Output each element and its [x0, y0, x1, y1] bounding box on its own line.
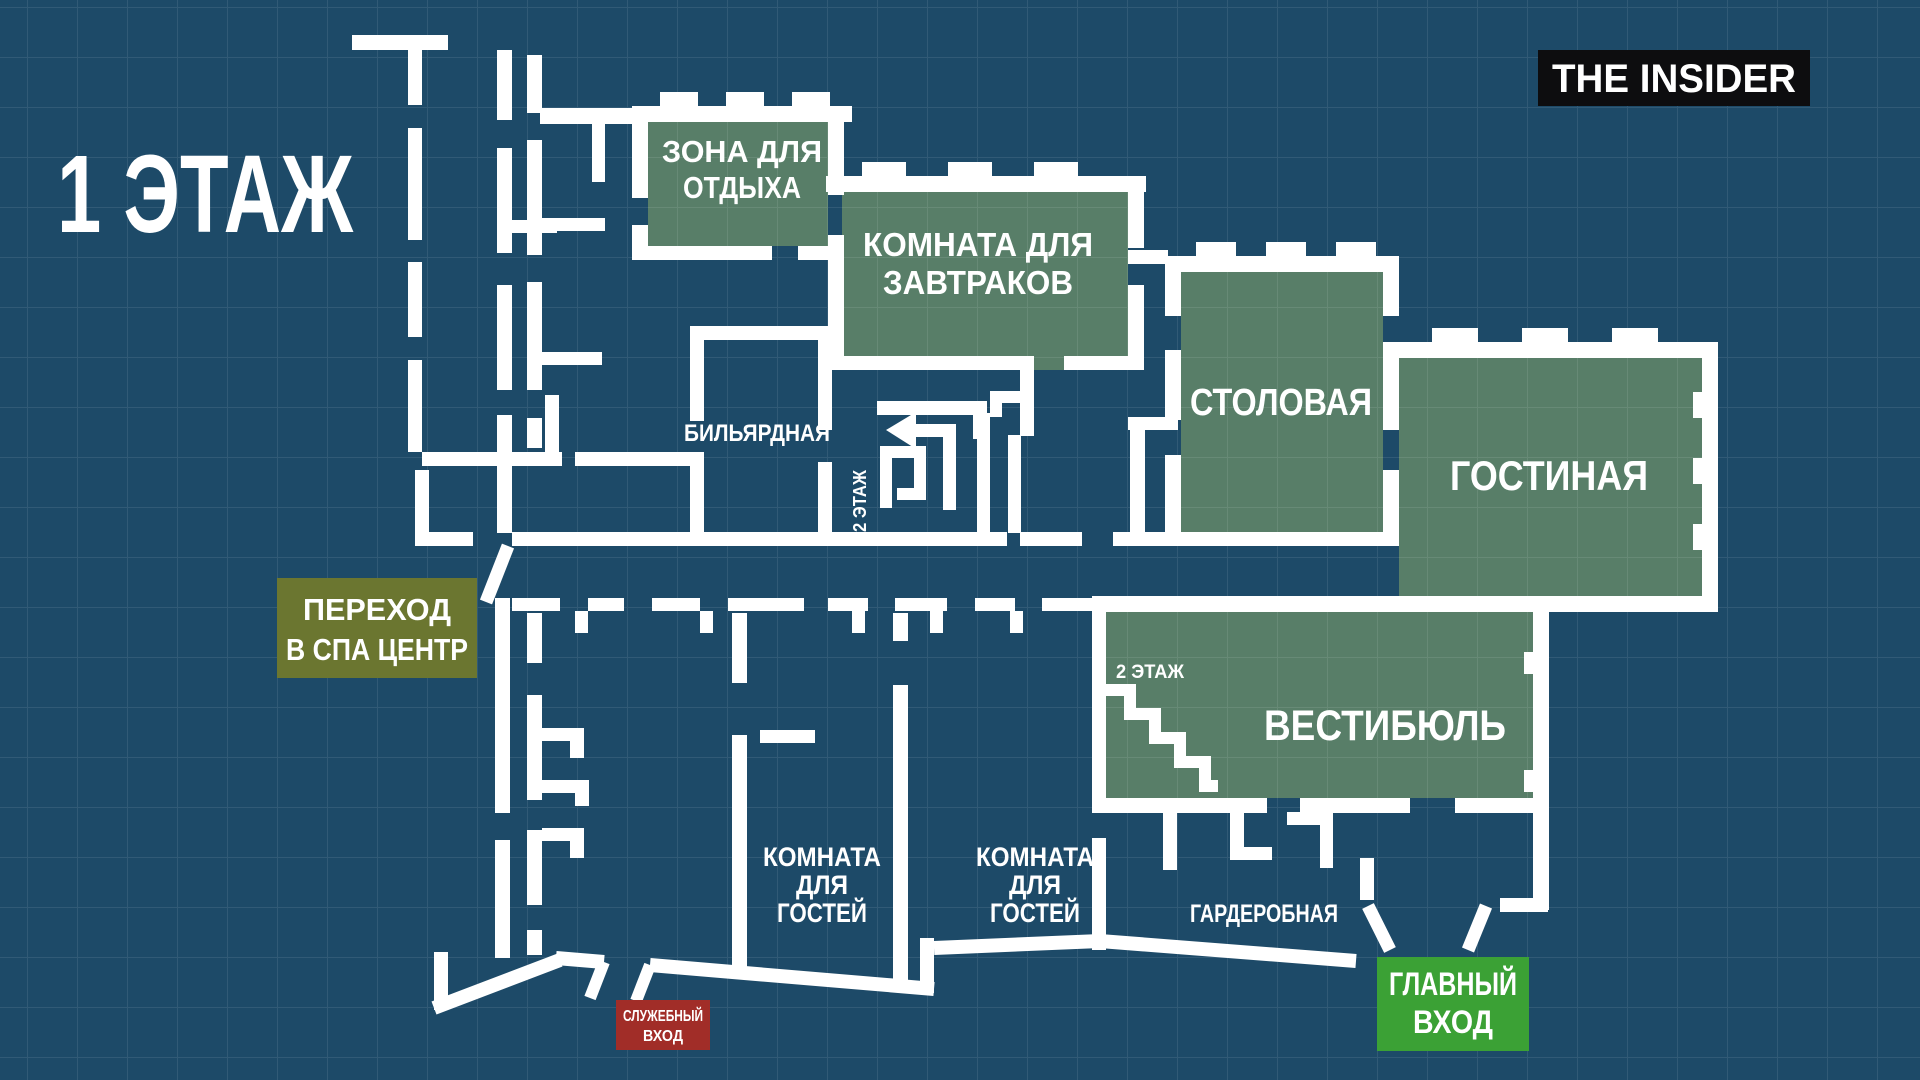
main-entrance-badge: ГЛАВНЫЙ ВХОД	[1377, 957, 1529, 1051]
stairs-upper-label: 2 ЭТАЖ	[850, 469, 870, 532]
floor-plan-page: 2 ЭТАЖ 2 ЭТАЖ ЗОНА ДЛЯ ОТДЫХА КОМНАТА ДЛ…	[0, 0, 1920, 1080]
label-guest-left-line1: КОМНАТА	[763, 842, 881, 872]
label-cloakroom: ГАРДЕРОБНАЯ	[1190, 900, 1338, 928]
label-rest-line2: ОТДЫХА	[683, 170, 801, 205]
spa-passage-badge: ПЕРЕХОД В СПА ЦЕНТР	[277, 578, 477, 678]
main-entrance-line2: ВХОД	[1413, 1004, 1493, 1040]
label-breakfast-line1: КОМНАТА ДЛЯ	[863, 226, 1093, 263]
label-guest-right-line2: ДЛЯ	[1009, 870, 1061, 900]
label-rest-line1: ЗОНА ДЛЯ	[662, 134, 822, 169]
label-guest-right-line3: ГОСТЕЙ	[990, 897, 1080, 928]
stairs-vestibule-label: 2 ЭТАЖ	[1116, 662, 1185, 683]
label-guest-right-line1: КОМНАТА	[976, 842, 1094, 872]
label-guest-left-line2: ДЛЯ	[796, 870, 848, 900]
label-guest-left-line3: ГОСТЕЙ	[777, 897, 867, 928]
page-title: 1 ЭТАЖ	[57, 133, 353, 256]
logo-text: THE INSIDER	[1552, 57, 1796, 101]
label-living: ГОСТИНАЯ	[1450, 452, 1648, 499]
main-entrance-line1: ГЛАВНЫЙ	[1389, 966, 1517, 1002]
label-vestibule: ВЕСТИБЮЛЬ	[1264, 702, 1506, 750]
service-entrance-line2: ВХОД	[643, 1028, 684, 1045]
floor-plan-canvas: 2 ЭТАЖ 2 ЭТАЖ ЗОНА ДЛЯ ОТДЫХА КОМНАТА ДЛ…	[0, 0, 1920, 1080]
spa-badge-line1: ПЕРЕХОД	[303, 592, 451, 627]
spa-badge-line2: В СПА ЦЕНТР	[286, 632, 468, 667]
label-breakfast-line2: ЗАВТРАКОВ	[883, 264, 1073, 301]
service-entrance-badge: СЛУЖЕБНЫЙ ВХОД	[616, 1000, 710, 1050]
publisher-logo: THE INSIDER	[1538, 50, 1810, 106]
label-dining: СТОЛОВАЯ	[1190, 382, 1372, 424]
label-billiard: БИЛЬЯРДНАЯ	[684, 420, 830, 447]
service-entrance-line1: СЛУЖЕБНЫЙ	[623, 1006, 703, 1025]
